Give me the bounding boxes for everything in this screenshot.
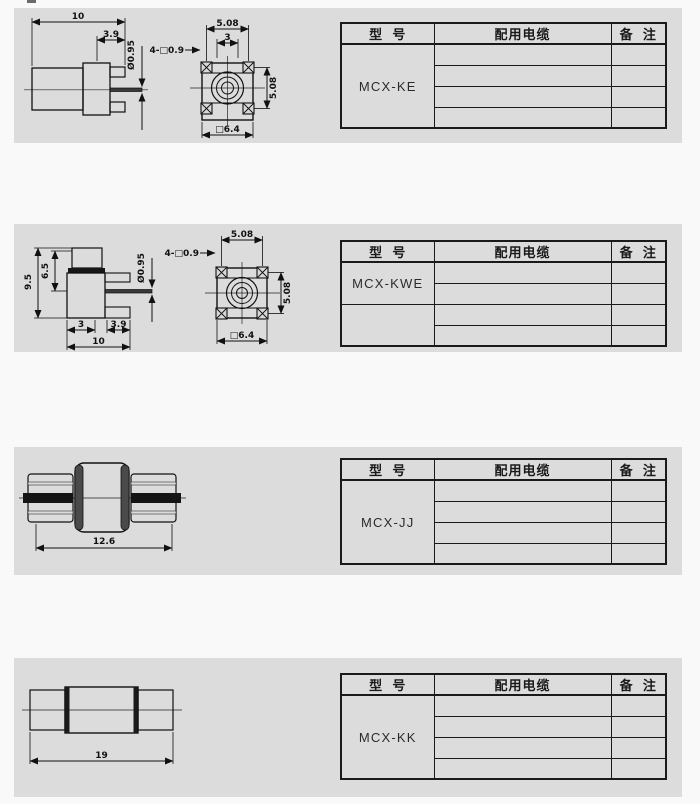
dim-tail-length: 3.9 bbox=[111, 320, 127, 330]
drawing-mcx-kk: 19 bbox=[14, 658, 344, 797]
drawing-mcx-ke: 10 3.9 Ø0.95 bbox=[14, 8, 344, 143]
center-barrel bbox=[75, 463, 129, 532]
remark-cell bbox=[611, 695, 666, 716]
dim-pin-square: 4-□0.9 bbox=[165, 249, 199, 259]
col-header-cable: 配用电缆 bbox=[434, 23, 611, 44]
dim-overall-width: 10 bbox=[72, 12, 85, 22]
remark-cell bbox=[611, 86, 666, 107]
mount-leg-bottom bbox=[110, 102, 125, 112]
cable-cell bbox=[434, 304, 611, 325]
section-mcx-kk: 19 型 号 配用电缆 备 注 MCX-KK bbox=[14, 658, 682, 797]
col-header-remark: 备 注 bbox=[611, 674, 666, 695]
mcx-kk-side-view bbox=[22, 687, 182, 733]
col-header-model: 型 号 bbox=[341, 459, 434, 480]
right-end-band bbox=[134, 687, 139, 733]
spec-table-mcx-jj: 型 号 配用电缆 备 注 MCX-JJ bbox=[340, 458, 667, 565]
connector-barrel bbox=[32, 68, 83, 110]
col-header-cable: 配用电缆 bbox=[434, 459, 611, 480]
mcx-kk-dimensions: 19 bbox=[30, 732, 173, 764]
dim-body-square: □6.4 bbox=[230, 331, 254, 341]
model-cell: MCX-KE bbox=[341, 44, 434, 128]
dim-pin-square: 4-□0.9 bbox=[150, 46, 184, 56]
cable-cell bbox=[434, 695, 611, 716]
mount-leg-top bbox=[110, 67, 125, 77]
center-pin bbox=[110, 88, 142, 92]
model-cell: MCX-JJ bbox=[341, 480, 434, 564]
left-end-band bbox=[65, 687, 70, 733]
cable-cell bbox=[434, 501, 611, 522]
mount-leg-bottom bbox=[105, 307, 130, 318]
section-mcx-jj: 12.6 型 号 配用电缆 备 注 MCX-JJ bbox=[14, 447, 682, 575]
dim-overall-height: 9.5 bbox=[24, 274, 34, 290]
remark-cell bbox=[611, 522, 666, 543]
cable-cell bbox=[434, 325, 611, 346]
cable-cell bbox=[434, 758, 611, 779]
remark-cell bbox=[611, 262, 666, 283]
drawing-mcx-kwe: 9.5 6.5 Ø0.95 3 3.9 10 bbox=[14, 224, 344, 352]
cable-cell bbox=[434, 283, 611, 304]
mcx-kwe-front-view bbox=[205, 262, 280, 324]
remark-cell bbox=[611, 737, 666, 758]
col-header-cable: 配用电缆 bbox=[434, 674, 611, 695]
header-row: 型 号 配用电缆 备 注 bbox=[341, 674, 666, 695]
dim-tail-length: 3.9 bbox=[103, 30, 119, 40]
remark-cell bbox=[611, 107, 666, 128]
remark-cell bbox=[611, 480, 666, 501]
cable-cell bbox=[434, 737, 611, 758]
remark-cell bbox=[611, 44, 666, 65]
spec-table-mcx-kk: 型 号 配用电缆 备 注 MCX-KK bbox=[340, 673, 667, 780]
table-row: MCX-KK bbox=[341, 695, 666, 716]
remark-cell bbox=[611, 543, 666, 564]
spec-table-mcx-ke: 型 号 配用电缆 备 注 MCX-KE bbox=[340, 22, 667, 129]
table-row: MCX-KWE bbox=[341, 262, 666, 283]
cable-cell bbox=[434, 107, 611, 128]
datasheet-page: 10 3.9 Ø0.95 bbox=[0, 0, 700, 804]
cable-cell bbox=[434, 65, 611, 86]
dim-slot-width: 3 bbox=[224, 33, 230, 43]
dim-slot-width: 3 bbox=[78, 320, 84, 330]
mount-leg-top bbox=[105, 273, 130, 282]
remark-cell bbox=[611, 716, 666, 737]
mcx-kwe-front-dimensions: 5.08 4-□0.9 5.08 □6.4 bbox=[165, 230, 293, 344]
dim-overall-width: 10 bbox=[92, 337, 105, 347]
col-header-cable: 配用电缆 bbox=[434, 241, 611, 262]
mcx-ke-front-view bbox=[190, 56, 265, 126]
header-row: 型 号 配用电缆 备 注 bbox=[341, 23, 666, 44]
cable-cell bbox=[434, 543, 611, 564]
dim-body-height: 6.5 bbox=[41, 263, 51, 279]
dim-overall-length: 19 bbox=[95, 751, 108, 761]
section-mcx-kwe: 9.5 6.5 Ø0.95 3 3.9 10 bbox=[14, 224, 682, 352]
col-header-remark: 备 注 bbox=[611, 23, 666, 44]
dim-pin-pitch-horizontal: 5.08 bbox=[216, 19, 238, 29]
cable-cell bbox=[434, 716, 611, 737]
table-row bbox=[341, 304, 666, 325]
left-collet bbox=[23, 474, 73, 522]
col-header-model: 型 号 bbox=[341, 241, 434, 262]
spec-table-mcx-kwe: 型 号 配用电缆 备 注 MCX-KWE bbox=[340, 240, 667, 347]
dim-pin-pitch-horizontal: 5.08 bbox=[231, 230, 253, 240]
connector-body bbox=[67, 273, 105, 318]
dim-pin-pitch-vertical: 5.08 bbox=[283, 282, 293, 304]
remark-cell bbox=[611, 501, 666, 522]
col-header-remark: 备 注 bbox=[611, 241, 666, 262]
dim-body-square: □6.4 bbox=[215, 125, 239, 135]
mcx-kwe-side-dimensions: 9.5 6.5 Ø0.95 3 3.9 10 bbox=[24, 248, 152, 350]
model-cell: MCX-KWE bbox=[341, 262, 434, 304]
remark-cell bbox=[611, 325, 666, 346]
center-pin bbox=[105, 290, 152, 294]
remark-cell bbox=[611, 758, 666, 779]
drawing-mcx-jj: 12.6 bbox=[14, 447, 344, 575]
table-row: MCX-KE bbox=[341, 44, 666, 65]
remark-cell bbox=[611, 283, 666, 304]
header-row: 型 号 配用电缆 备 注 bbox=[341, 459, 666, 480]
col-header-model: 型 号 bbox=[341, 23, 434, 44]
model-cell: MCX-KK bbox=[341, 695, 434, 779]
dark-ring bbox=[68, 268, 105, 273]
mating-stub bbox=[72, 248, 102, 268]
header-row: 型 号 配用电缆 备 注 bbox=[341, 241, 666, 262]
col-header-model: 型 号 bbox=[341, 674, 434, 695]
cable-cell bbox=[434, 480, 611, 501]
cable-cell bbox=[434, 522, 611, 543]
connector-body bbox=[83, 63, 110, 115]
cable-cell bbox=[434, 44, 611, 65]
dim-pin-pitch-vertical: 5.08 bbox=[269, 77, 279, 99]
dim-pin-diameter: Ø0.95 bbox=[126, 40, 137, 70]
model-cell-empty bbox=[341, 304, 434, 346]
section-mcx-ke: 10 3.9 Ø0.95 bbox=[14, 8, 682, 143]
page-edge-artifact bbox=[27, 0, 36, 3]
mcx-jj-side-view bbox=[19, 463, 186, 532]
col-header-remark: 备 注 bbox=[611, 459, 666, 480]
right-collet bbox=[131, 474, 181, 522]
cable-cell bbox=[434, 262, 611, 283]
dim-pin-diameter: Ø0.95 bbox=[136, 253, 147, 283]
mcx-jj-dimensions: 12.6 bbox=[36, 524, 172, 551]
table-row: MCX-JJ bbox=[341, 480, 666, 501]
remark-cell bbox=[611, 65, 666, 86]
remark-cell bbox=[611, 304, 666, 325]
dim-overall-length: 12.6 bbox=[93, 537, 115, 547]
cable-cell bbox=[434, 86, 611, 107]
